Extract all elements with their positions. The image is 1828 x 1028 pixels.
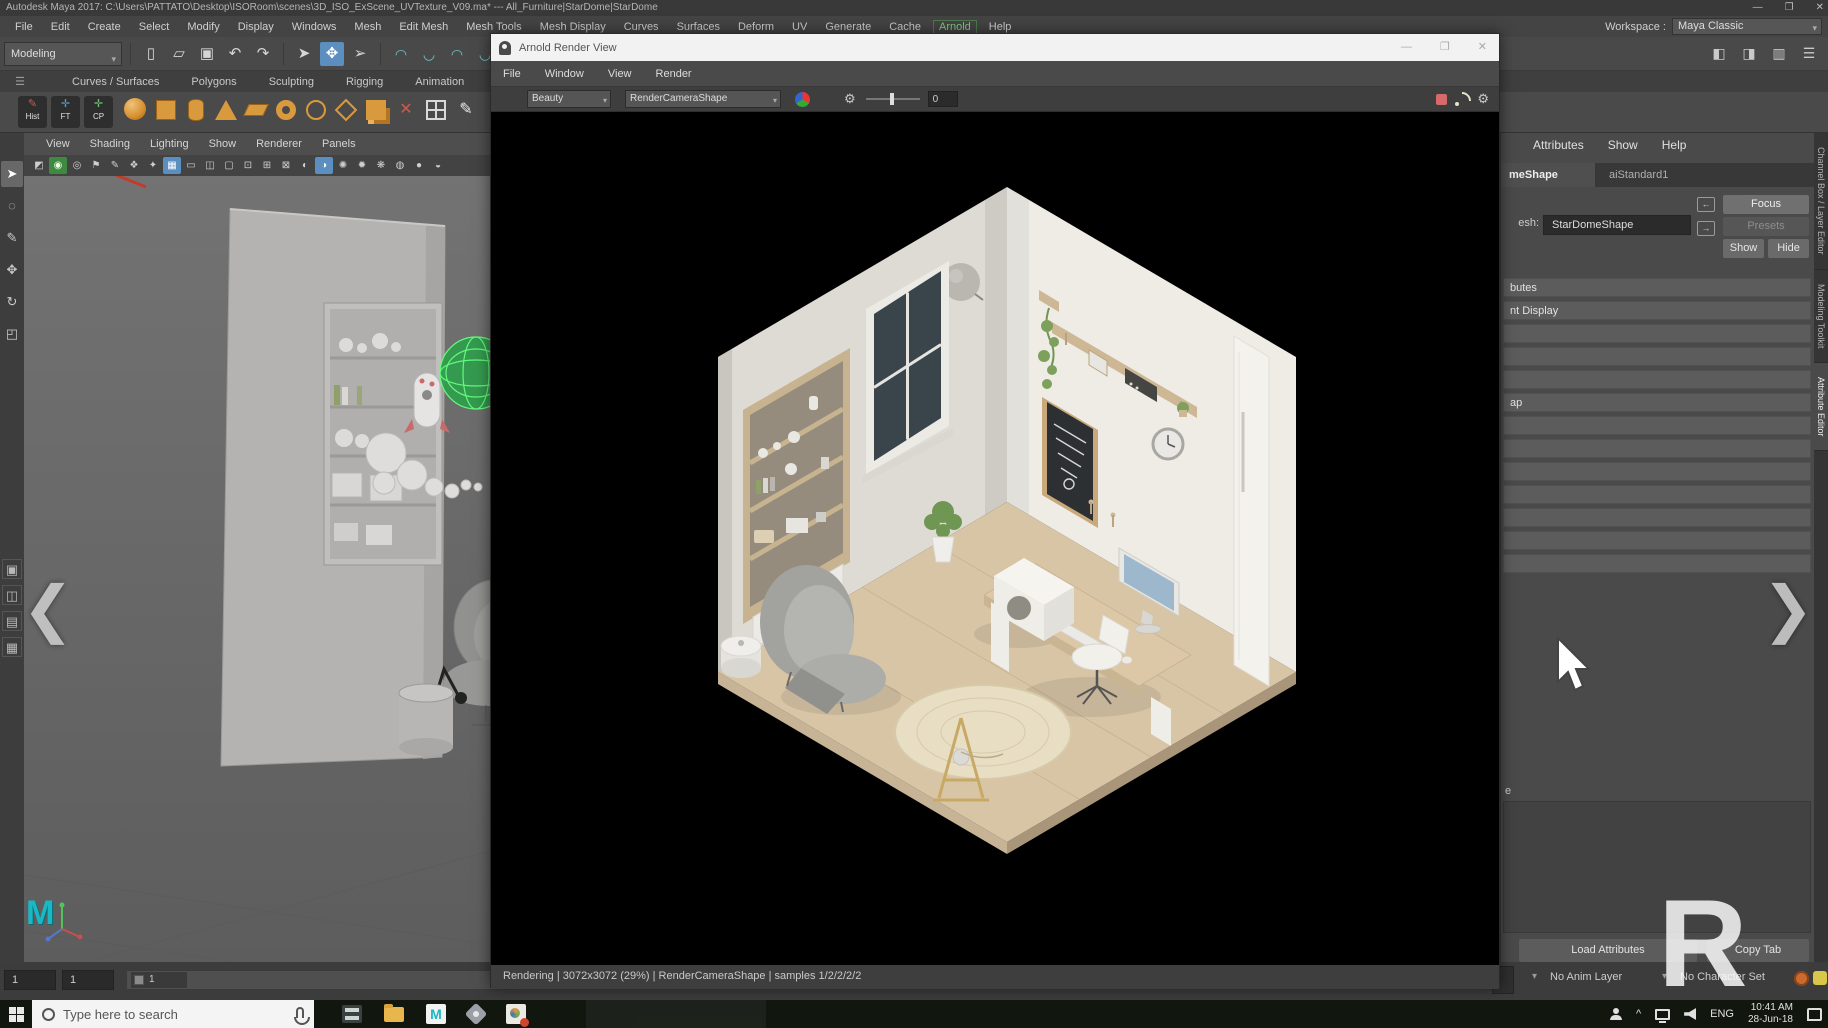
photos-app-icon[interactable] xyxy=(506,1004,526,1024)
close-icon[interactable]: ✕ xyxy=(1478,34,1487,61)
nurbs-cube-icon[interactable] xyxy=(154,98,178,122)
windows-taskbar: Type here to search M ^ ENG 10:41 AM28-J… xyxy=(0,1000,1828,1028)
render-canvas[interactable] xyxy=(491,112,1499,965)
range-start-chip[interactable]: 1 xyxy=(131,972,187,988)
menu-item[interactable]: Select xyxy=(130,20,179,34)
file-tool-icon[interactable]: ↷ xyxy=(251,42,275,66)
menu-item[interactable]: Mesh xyxy=(345,20,390,34)
layout-button-icon[interactable]: ▤ xyxy=(2,611,22,631)
tool-icon[interactable]: ✎ xyxy=(1,225,23,251)
tab-shader-node[interactable]: aiStandard1 xyxy=(1595,163,1715,187)
menu-item[interactable]: Surfaces xyxy=(668,20,729,34)
shelf-tab[interactable]: Polygons xyxy=(175,76,252,88)
viewport-menu-item[interactable]: View xyxy=(36,138,80,150)
chevron-down-icon: ▾ xyxy=(1812,21,1817,36)
arnold-menu-item[interactable]: File xyxy=(491,68,533,80)
viewport-toolbar-icon[interactable]: ◫ xyxy=(201,157,219,174)
viewport-toolbar-icon[interactable]: ❖ xyxy=(125,157,143,174)
aov-dropdown[interactable]: Beauty▾ xyxy=(527,90,611,108)
menu-item[interactable]: UV xyxy=(783,20,816,34)
people-icon[interactable] xyxy=(1610,1008,1622,1020)
viewport-toolbar-icon[interactable]: ⚑ xyxy=(87,157,105,174)
menu-item[interactable]: Curves xyxy=(615,20,668,34)
viewport-toolbar-icon[interactable]: ● xyxy=(410,157,428,174)
attribute-editor: AttributesShowHelp meShape aiStandard1 e… xyxy=(1500,133,1814,962)
viewport-toolbar-icon[interactable]: ⊞ xyxy=(258,157,276,174)
arnold-menu-item[interactable]: Render xyxy=(644,68,704,80)
shelf-tab[interactable]: Curves / Surfaces xyxy=(56,76,175,88)
chevron-down-icon: ▾ xyxy=(111,48,116,70)
menu-item[interactable]: Generate xyxy=(816,20,880,34)
attribute-section-bar[interactable] xyxy=(1503,485,1811,504)
arnold-toolbar: Beauty▾ RenderCameraShape▾ ⚙ 0 ⚙ xyxy=(491,87,1499,112)
attribute-editor-menu-item[interactable]: Attributes xyxy=(1521,138,1596,152)
viewport-toolbar: ◩◉◎⚑✎❖✦▦▭◫▢⊡⊞⊠◐◑✺✹❋◍●◒ xyxy=(24,155,490,176)
viewport-menu-item[interactable]: Show xyxy=(199,138,247,150)
viewport-toolbar-icon[interactable]: ✹ xyxy=(353,157,371,174)
tool-icon[interactable]: ➤ xyxy=(1,161,23,187)
snap-tool-icon[interactable]: ◠ xyxy=(389,42,413,66)
hide-button[interactable]: Hide xyxy=(1768,239,1809,258)
start-button-icon[interactable] xyxy=(9,1007,24,1022)
menu-set-dropdown[interactable]: Modeling▾ xyxy=(4,42,122,66)
arnold-menu-item[interactable]: View xyxy=(596,68,644,80)
sidebar-toggle-icon[interactable]: ▥ xyxy=(1768,42,1790,64)
file-tool-icon[interactable]: ▣ xyxy=(195,42,219,66)
sidebar-toggle-icon[interactable]: ◧ xyxy=(1708,42,1730,64)
mesh-name-field[interactable]: StarDomeShape xyxy=(1543,215,1691,235)
viewport-toolbar-icon[interactable]: ◎ xyxy=(68,157,86,174)
viewport-scene[interactable] xyxy=(24,133,490,962)
maximize-icon[interactable]: ❐ xyxy=(1785,0,1794,16)
right-sidebar-tabs: Channel Box / Layer EditorModeling Toolk… xyxy=(1814,133,1828,962)
rendered-room-image xyxy=(491,112,1499,965)
maya-titlebar: Autodesk Maya 2017: C:\Users\PATTATO\Des… xyxy=(0,0,1828,16)
menu-item[interactable]: File xyxy=(6,20,42,34)
layout-button-icon[interactable]: ▦ xyxy=(2,637,22,657)
tool-icon[interactable]: ✥ xyxy=(1,257,23,283)
arnold-render-view-window: Arnold Render View — ❐ ✕ FileWindowViewR… xyxy=(490,33,1500,988)
rgb-channels-icon[interactable] xyxy=(795,92,810,107)
anim-layer-dropdown[interactable]: No Anim Layer xyxy=(1550,971,1622,983)
notes-field[interactable] xyxy=(1503,801,1811,933)
shelf-tab[interactable]: Sculpting xyxy=(253,76,330,88)
viewport-menu-item[interactable]: Panels xyxy=(312,138,366,150)
minimize-icon[interactable]: — xyxy=(1401,34,1412,61)
shelf-button-hist[interactable]: ✎ Hist xyxy=(18,96,47,128)
gear-icon[interactable]: ⚙ xyxy=(1477,91,1489,107)
next-overlay-arrow[interactable]: ❯ xyxy=(1762,572,1814,645)
nurbs-cone-icon[interactable] xyxy=(214,98,238,122)
file-tool-icon[interactable]: ▯ xyxy=(139,42,163,66)
tab-shape-node[interactable]: meShape xyxy=(1501,163,1595,187)
current-frame-field[interactable]: 1 xyxy=(4,970,56,990)
delete-icon[interactable]: ✕ xyxy=(394,98,418,122)
network-icon[interactable] xyxy=(1655,1009,1670,1020)
toolbox: ➤◌✎✥↻◰ ▣◫▤▦ xyxy=(0,133,24,962)
search-placeholder: Type here to search xyxy=(63,1007,178,1022)
tool-icon[interactable]: ◌ xyxy=(1,193,23,219)
menu-item[interactable]: Edit Mesh xyxy=(390,20,457,34)
camera-dropdown[interactable]: RenderCameraShape▾ xyxy=(625,90,781,108)
viewport-toolbar-icon[interactable]: ◑ xyxy=(315,157,333,174)
chevron-down-icon: ▾ xyxy=(773,93,777,109)
selection-buttons: ➤✥➢ xyxy=(292,42,372,66)
attribute-editor-menu-item[interactable]: Show xyxy=(1596,138,1650,152)
video-app-icon[interactable] xyxy=(342,1005,362,1023)
menu-item[interactable]: Windows xyxy=(283,20,346,34)
close-icon[interactable]: ✕ xyxy=(1816,0,1824,16)
tool-icon[interactable]: ◰ xyxy=(1,321,23,347)
attribute-section-bar[interactable] xyxy=(1503,324,1811,343)
snap-tool-icon[interactable]: ◠ xyxy=(445,42,469,66)
shelf-button-cp[interactable]: ✛ CP xyxy=(84,96,113,128)
viewport-toolbar-icon[interactable]: ◍ xyxy=(391,157,409,174)
curve-cluster-icon[interactable] xyxy=(364,98,388,122)
nurbs-sphere-icon[interactable] xyxy=(124,98,148,122)
shelf-button-ft[interactable]: ✛ FT xyxy=(51,96,80,128)
maya-application: Autodesk Maya 2017: C:\Users\PATTATO\Des… xyxy=(0,0,1828,1028)
attribute-section-bar[interactable] xyxy=(1503,554,1811,573)
menu-item[interactable]: Arnold xyxy=(933,20,977,34)
attribute-section-bar[interactable] xyxy=(1503,531,1811,550)
focus-button[interactable]: Focus xyxy=(1723,195,1809,214)
tray-expand-icon[interactable]: ^ xyxy=(1636,1008,1641,1020)
nurbs-torus-icon[interactable] xyxy=(274,98,298,122)
layout-button-icon[interactable]: ◫ xyxy=(2,585,22,605)
arnold-menubar: FileWindowViewRender xyxy=(491,61,1499,87)
selection-tool-icon[interactable]: ✥ xyxy=(320,42,344,66)
menu-item[interactable]: Create xyxy=(79,20,130,34)
viewport-toolbar-icon[interactable]: ✺ xyxy=(334,157,352,174)
viewport-menu-item[interactable]: Renderer xyxy=(246,138,312,150)
active-app-indicator[interactable] xyxy=(586,1000,766,1028)
shelf-tab[interactable]: Rigging xyxy=(330,76,399,88)
attribute-section-bar[interactable] xyxy=(1503,416,1811,435)
viewport-toolbar-icon[interactable]: ▢ xyxy=(220,157,238,174)
show-button[interactable]: Show xyxy=(1723,239,1764,258)
start-frame-field[interactable]: 1 xyxy=(62,970,114,990)
menu-item[interactable]: Mesh Tools xyxy=(457,20,530,34)
attribute-section-bar[interactable] xyxy=(1503,462,1811,481)
exposure-slider[interactable] xyxy=(866,98,920,100)
attribute-section-bar[interactable]: butes xyxy=(1503,278,1811,297)
sidebar-toggle-icon[interactable]: ◨ xyxy=(1738,42,1760,64)
axes-icon: ✛ xyxy=(51,96,80,112)
menu-item[interactable]: Deform xyxy=(729,20,783,34)
range-slider[interactable]: 1 xyxy=(126,970,518,990)
shelf-menu-icon[interactable]: ☰ xyxy=(0,75,40,88)
shelf-tab[interactable]: Animation xyxy=(399,76,480,88)
nurbs-cylinder-icon[interactable] xyxy=(184,98,208,122)
stop-render-icon[interactable] xyxy=(1436,94,1447,105)
menu-item[interactable]: Cache xyxy=(880,20,930,34)
viewport-toolbar-icon[interactable]: ▭ xyxy=(182,157,200,174)
attribute-section-bar[interactable]: ap xyxy=(1503,393,1811,412)
live-render-icon[interactable] xyxy=(1455,93,1469,106)
notifications-icon[interactable] xyxy=(1807,1008,1822,1021)
attribute-section-bar[interactable] xyxy=(1503,508,1811,527)
watermark-logo: R xyxy=(1658,882,1748,1006)
menu-items: FileEditCreateSelectModifyDisplayWindows… xyxy=(0,20,1020,34)
file-buttons: ▯▱▣↶↷ xyxy=(139,42,275,66)
microphone-icon[interactable] xyxy=(296,1007,304,1018)
file-explorer-icon[interactable] xyxy=(384,1007,404,1022)
arnold-logo-icon xyxy=(499,41,511,55)
attribute-editor-menu-item[interactable]: Help xyxy=(1650,138,1699,152)
exposure-icon[interactable]: ⚙ xyxy=(844,91,856,107)
viewport-toolbar-icon[interactable]: ◩ xyxy=(30,157,48,174)
viewport-toolbar-icon[interactable]: ◉ xyxy=(49,157,67,174)
notes-label-fragment: e xyxy=(1505,785,1511,797)
nurbs-square-icon[interactable] xyxy=(334,98,358,122)
menu-item[interactable]: Mesh Display xyxy=(531,20,615,34)
pin-tab-icon[interactable]: ← xyxy=(1697,197,1715,212)
menu-item[interactable]: Display xyxy=(229,20,283,34)
maximize-icon[interactable]: ❐ xyxy=(1440,34,1450,61)
presets-button[interactable]: Presets xyxy=(1723,217,1809,236)
maya-taskbar-icon[interactable]: M xyxy=(426,1004,446,1024)
viewport-toolbar-icon[interactable]: ⊡ xyxy=(239,157,257,174)
search-icon xyxy=(42,1008,55,1021)
viewport-toolbar-icon[interactable]: ◒ xyxy=(429,157,447,174)
nurbs-circle-icon[interactable] xyxy=(304,98,328,122)
anim-layer-icon[interactable] xyxy=(1794,971,1809,986)
menu-item[interactable]: Edit xyxy=(42,20,79,34)
maya-logo: M xyxy=(26,894,54,933)
attribute-section-bar[interactable] xyxy=(1503,439,1811,458)
viewport-toolbar-icon[interactable]: ⊠ xyxy=(277,157,295,174)
arnold-titlebar[interactable]: Arnold Render View — ❐ ✕ xyxy=(491,34,1499,61)
viewport-menubar: ViewShadingLightingShowRendererPanels xyxy=(24,133,490,155)
breakout-tab-icon[interactable]: → xyxy=(1697,221,1715,236)
cylinder-object[interactable] xyxy=(399,684,453,756)
sidebar-toggle-icon[interactable]: ☰ xyxy=(1798,42,1820,64)
exposure-value-field[interactable]: 0 xyxy=(928,91,958,107)
sidebar-vertical-tab[interactable]: Channel Box / Layer Editor xyxy=(1814,133,1828,270)
workspace-label: Workspace : xyxy=(1605,21,1666,33)
arnold-menu-item[interactable]: Window xyxy=(533,68,596,80)
attribute-section-bar[interactable] xyxy=(1503,347,1811,366)
attribute-sections: butesnt Displayap xyxy=(1503,278,1811,577)
tool-icon[interactable]: ↻ xyxy=(1,289,23,315)
language-indicator[interactable]: ENG xyxy=(1710,1008,1734,1020)
speaker-icon[interactable] xyxy=(1684,1008,1696,1020)
character-set-icon[interactable] xyxy=(1813,971,1827,985)
viewport-panel[interactable]: ViewShadingLightingShowRendererPanels ◩◉… xyxy=(24,133,490,962)
menu-item[interactable]: Help xyxy=(980,20,1021,34)
clock[interactable]: 10:41 AM28-Jun-18 xyxy=(1748,1002,1793,1026)
pencil-curve-icon[interactable]: ✎ xyxy=(454,98,478,122)
capture-app-icon[interactable] xyxy=(465,1003,488,1026)
workspace-dropdown[interactable]: Maya Classic ▾ xyxy=(1672,18,1822,35)
nurbs-plane-icon[interactable] xyxy=(244,98,268,122)
selection-tool-icon[interactable]: ➤ xyxy=(292,42,316,66)
chevron-down-icon: ▾ xyxy=(603,93,607,109)
arnold-window-title: Arnold Render View xyxy=(519,42,617,54)
chevron-down-icon[interactable]: ▾ xyxy=(1532,971,1537,982)
viewport-menu-item[interactable]: Lighting xyxy=(140,138,199,150)
attribute-section-bar[interactable]: nt Display xyxy=(1503,301,1811,320)
minimize-icon[interactable]: — xyxy=(1753,0,1763,16)
previous-overlay-arrow[interactable]: ❮ xyxy=(22,572,74,645)
file-tool-icon[interactable]: ↶ xyxy=(223,42,247,66)
selection-tool-icon[interactable]: ➢ xyxy=(348,42,372,66)
mouse-cursor xyxy=(1556,636,1596,694)
taskbar-search[interactable]: Type here to search xyxy=(32,1000,314,1028)
sidebar-vertical-tab[interactable]: Modeling Toolkit xyxy=(1814,270,1828,363)
axes-icon: ✛ xyxy=(84,96,113,112)
snap-tool-icon[interactable]: ◡ xyxy=(417,42,441,66)
layout-button-icon[interactable]: ▣ xyxy=(2,559,22,579)
viewport-toolbar-icon[interactable]: ✎ xyxy=(106,157,124,174)
sidebar-toggle-buttons: ◧◨▥☰ xyxy=(1708,42,1820,64)
grid-icon[interactable] xyxy=(424,98,448,122)
attribute-section-bar[interactable] xyxy=(1503,370,1811,389)
viewport-toolbar-icon[interactable]: ◐ xyxy=(296,157,314,174)
mesh-label: esh: xyxy=(1501,217,1539,229)
pencil-icon: ✎ xyxy=(18,96,47,112)
file-tool-icon[interactable]: ▱ xyxy=(167,42,191,66)
menu-item[interactable]: Modify xyxy=(178,20,228,34)
viewport-toolbar-icon[interactable]: ❋ xyxy=(372,157,390,174)
viewport-toolbar-icon[interactable]: ▦ xyxy=(163,157,181,174)
sidebar-vertical-tab[interactable]: Attribute Editor xyxy=(1814,363,1828,452)
render-status-bar: Rendering | 3072x3072 (29%) | RenderCame… xyxy=(491,965,1499,989)
viewport-menu-item[interactable]: Shading xyxy=(80,138,140,150)
maya-title: Autodesk Maya 2017: C:\Users\PATTATO\Des… xyxy=(6,2,658,13)
viewport-toolbar-icon[interactable]: ✦ xyxy=(144,157,162,174)
